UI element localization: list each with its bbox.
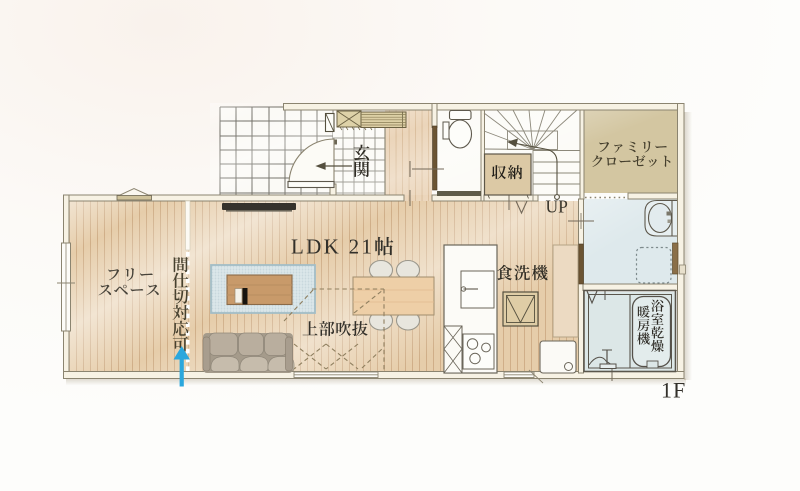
svg-text:1F: 1F bbox=[661, 378, 686, 403]
svg-text:LDK 21: LDK 21 bbox=[291, 235, 374, 259]
svg-text:UP: UP bbox=[546, 197, 569, 217]
